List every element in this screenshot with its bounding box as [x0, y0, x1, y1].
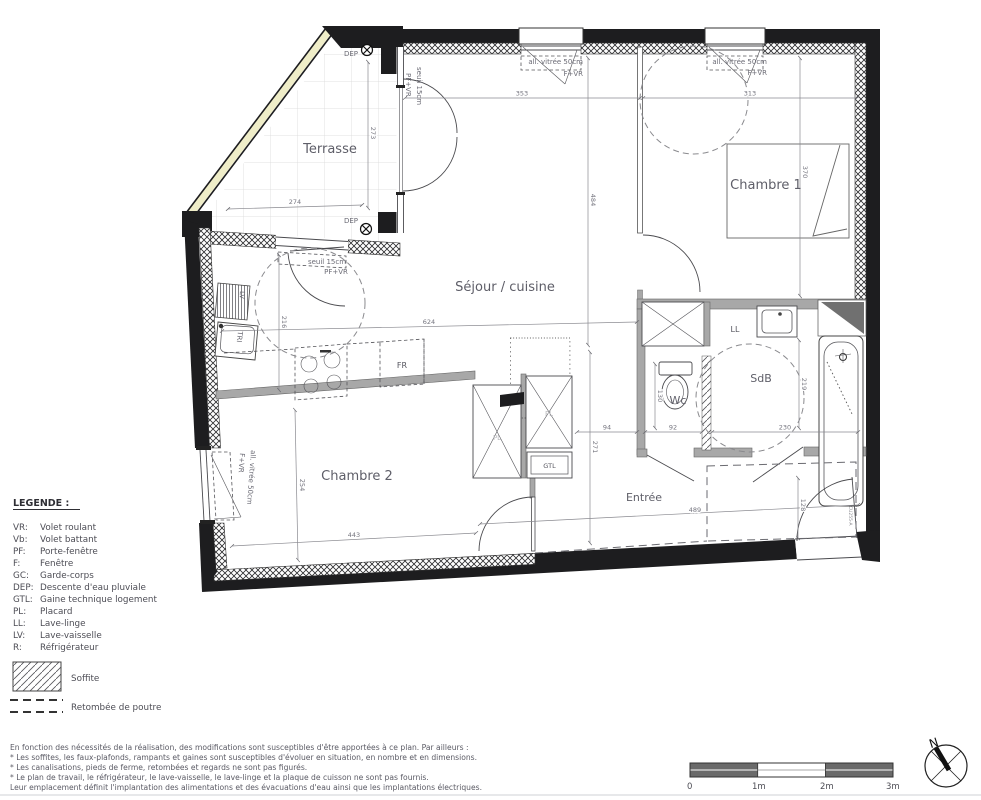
svg-text:Descente d'eau pluviale: Descente d'eau pluviale — [40, 583, 146, 593]
svg-text:271: 271 — [591, 441, 599, 453]
svg-text:F:: F: — [13, 559, 20, 569]
sejour-window-label: all. vitrée 50cm — [528, 58, 583, 66]
svg-text:DEP: DEP — [344, 50, 358, 58]
room-label-chambre2: Chambre 2 — [321, 469, 393, 484]
svg-text:VR:: VR: — [13, 523, 28, 533]
toilet-tank — [659, 362, 692, 375]
sejour-window-shutter-label: F+VR — [563, 70, 583, 78]
sejour-window: all. vitrée 50cm F+VR — [519, 28, 583, 84]
floor-plan-page: all. vitrée 50cm F+VR all. vitrée 50cm F… — [0, 0, 981, 800]
svg-text:Lave-vaisselle: Lave-vaisselle — [40, 631, 102, 641]
svg-text:274: 274 — [289, 198, 301, 206]
svg-text:DEP: DEP — [344, 217, 358, 225]
technical-closet — [642, 302, 710, 346]
svg-text:PL:: PL: — [13, 607, 26, 617]
svg-text:Fenêtre: Fenêtre — [40, 558, 73, 569]
bathtub — [819, 336, 863, 506]
svg-text:Gaine technique logement: Gaine technique logement — [40, 595, 157, 605]
svg-text:LL:: LL: — [13, 619, 26, 629]
svg-text:* Le plan de travail, le réfri: * Le plan de travail, le réfrigérateur, … — [10, 773, 429, 782]
entrance-door-ref: CU255-A — [847, 506, 853, 527]
svg-text:484: 484 — [589, 194, 597, 206]
svg-text:230: 230 — [779, 424, 791, 432]
svg-text:353: 353 — [516, 90, 528, 98]
soffite-swatch — [13, 662, 61, 691]
svg-text:130: 130 — [656, 390, 664, 402]
placard-2: PL — [526, 376, 572, 448]
svg-text:LV:: LV: — [13, 631, 25, 641]
svg-text:Leur emplacement définit l'imp: Leur emplacement définit l'implantation … — [10, 783, 482, 792]
compass-needle-icon — [936, 748, 949, 770]
compass: N — [925, 735, 967, 787]
svg-text:PF:: PF: — [13, 547, 26, 557]
svg-text:254: 254 — [298, 479, 306, 492]
chambre1-window-shutter-label: F+VR — [747, 69, 767, 77]
svg-text:2m: 2m — [820, 782, 834, 792]
washbasin — [757, 306, 797, 337]
soffite-corner — [818, 300, 866, 336]
svg-text:Volet roulant: Volet roulant — [40, 523, 97, 533]
svg-text:370: 370 — [801, 166, 809, 178]
svg-text:624: 624 — [423, 318, 435, 326]
sink-faucet-icon — [219, 324, 223, 328]
chambre1-window-label: all. vitrée 50cm — [712, 58, 767, 66]
room-label-chambre1: Chambre 1 — [730, 178, 802, 193]
legend-title: LEGENDE : — [13, 498, 69, 509]
svg-text:R:: R: — [13, 643, 22, 653]
svg-text:Lave-linge: Lave-linge — [40, 619, 86, 629]
svg-text:216: 216 — [280, 316, 288, 328]
floor-plan-drawing: all. vitrée 50cm F+VR all. vitrée 50cm F… — [0, 0, 981, 800]
svg-text:128: 128 — [799, 499, 807, 511]
svg-text:PL: PL — [493, 434, 501, 442]
compass-north-label: N — [927, 735, 940, 751]
svg-text:LV: LV — [238, 291, 246, 299]
chambre2-window-shutter-label: F+VR — [237, 453, 246, 473]
svg-text:3m: 3m — [886, 782, 900, 792]
kitchen-pf-type-label: PF+VR — [324, 268, 348, 276]
notes: En fonction des nécessités de la réalisa… — [10, 743, 482, 792]
svg-text:* Les soffites, les faux-plafo: * Les soffites, les faux-plafonds, rampa… — [10, 753, 477, 762]
svg-text:1m: 1m — [752, 782, 766, 792]
svg-text:489: 489 — [689, 506, 701, 514]
svg-text:313: 313 — [744, 90, 756, 98]
chambre2-window: all. vitrée 50cm F+VR — [195, 446, 257, 524]
svg-text:0: 0 — [687, 782, 692, 792]
svg-text:GTL:: GTL: — [13, 595, 33, 605]
svg-text:92: 92 — [669, 424, 677, 432]
svg-text:Garde-corps: Garde-corps — [40, 571, 94, 581]
room-label-terrasse: Terrasse — [302, 142, 357, 157]
room-label-wc: Wc — [670, 394, 687, 407]
scale-bar: 0 1m 2m 3m — [687, 763, 900, 792]
chambre2-window-label: all. vitrée 50cm — [245, 450, 257, 505]
legend: LEGENDE : VR:Volet roulant Vb:Volet batt… — [10, 498, 161, 713]
svg-text:94: 94 — [603, 424, 611, 432]
svg-text:PL: PL — [545, 410, 553, 418]
dishwasher: LV — [215, 283, 250, 320]
svg-text:443: 443 — [348, 531, 360, 539]
svg-text:DEP:: DEP: — [13, 583, 34, 593]
terrace-porte-fenetre: seuil 15cm PF+VR — [396, 47, 457, 233]
svg-text:TRI: TRI — [235, 330, 244, 343]
terrace-pf-seuil-label: seuil 15cm — [415, 67, 423, 105]
retombee-label: Retombée de poutre — [71, 702, 161, 713]
terrace-pf-type-label: PF+VR — [404, 73, 412, 97]
room-label-entree: Entrée — [626, 491, 662, 504]
chambre1-window: all. vitrée 50cm F+VR — [705, 28, 767, 83]
svg-text:FR: FR — [397, 361, 408, 370]
kitchen-pf-seuil-label: seuil 15cm — [308, 258, 346, 266]
washer-label: LL — [731, 325, 740, 334]
gtl-box: GTL — [527, 452, 572, 478]
svg-text:GTL: GTL — [543, 462, 556, 470]
room-label-sejour: Séjour / cuisine — [455, 280, 555, 295]
svg-text:Volet battant: Volet battant — [40, 535, 98, 545]
chambre2-door — [479, 497, 535, 551]
turning-circle-sdb — [696, 344, 804, 452]
room-label-sdb: SdB — [750, 372, 772, 385]
svg-text:273: 273 — [369, 127, 377, 139]
soffite-label: Soffite — [71, 674, 99, 684]
svg-text:Porte-fenêtre: Porte-fenêtre — [40, 546, 98, 557]
svg-text:Réfrigérateur: Réfrigérateur — [40, 642, 99, 653]
svg-text:* Les canalisations, pieds de: * Les canalisations, pieds de ferme, ret… — [10, 763, 307, 772]
svg-text:Placard: Placard — [40, 607, 72, 617]
sink: TRI — [215, 322, 258, 360]
svg-text:GC:: GC: — [13, 571, 29, 581]
svg-text:219: 219 — [800, 378, 808, 390]
svg-text:Vb:: Vb: — [13, 535, 28, 545]
svg-text:En fonction des nécessités de: En fonction des nécessités de la réalisa… — [10, 743, 469, 752]
